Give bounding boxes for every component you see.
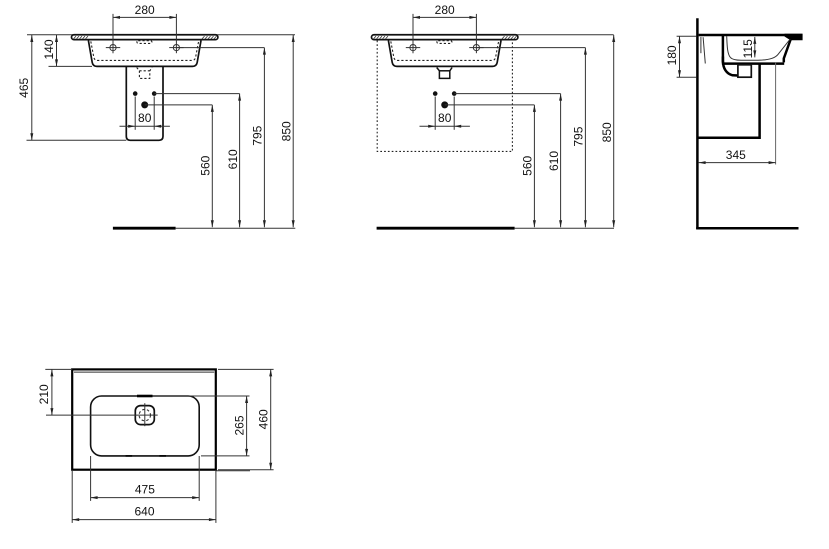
svg-text:115: 115 [741, 39, 755, 58]
svg-text:80: 80 [438, 111, 452, 125]
svg-text:280: 280 [435, 3, 455, 17]
svg-text:795: 795 [572, 126, 586, 146]
svg-text:850: 850 [280, 121, 294, 141]
svg-text:850: 850 [600, 122, 614, 142]
svg-text:610: 610 [547, 151, 561, 171]
svg-text:180: 180 [665, 45, 679, 65]
svg-text:475: 475 [135, 482, 155, 496]
svg-text:640: 640 [134, 505, 154, 519]
svg-text:795: 795 [251, 125, 265, 145]
svg-text:265: 265 [232, 415, 246, 435]
svg-text:210: 210 [37, 384, 51, 404]
svg-text:560: 560 [521, 155, 535, 175]
svg-text:460: 460 [257, 409, 271, 429]
svg-text:80: 80 [138, 111, 152, 125]
svg-text:465: 465 [17, 77, 31, 97]
svg-text:140: 140 [42, 39, 56, 59]
svg-text:610: 610 [226, 149, 240, 169]
svg-text:280: 280 [135, 3, 155, 17]
svg-text:560: 560 [199, 155, 213, 175]
svg-text:345: 345 [726, 148, 746, 162]
